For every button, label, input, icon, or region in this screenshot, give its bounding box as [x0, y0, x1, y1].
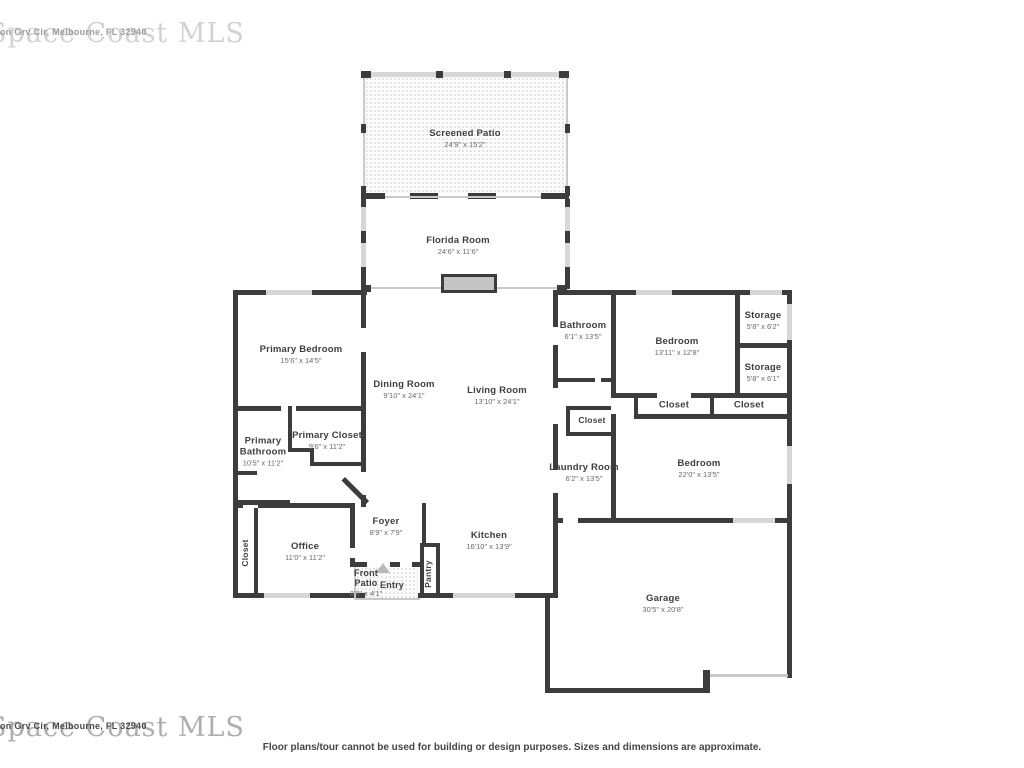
wall-segment	[553, 378, 595, 382]
window-segment	[453, 593, 515, 598]
watermark-top: Space Coast MLS on Grv Cir, Melbourne, F…	[0, 18, 320, 58]
wall-segment	[691, 393, 792, 398]
room-label-garage: Garage 30'5" x 20'8"	[642, 594, 683, 614]
wall-segment	[310, 462, 363, 466]
wall-segment	[233, 471, 257, 475]
room-label-front-patio: Front Patio 8'8" x 4'1"	[348, 568, 384, 598]
wall-segment	[566, 74, 568, 195]
room-label-bedroom-bottom: Bedroom 22'0" x 13'5"	[677, 459, 720, 479]
wall-segment	[361, 71, 371, 78]
window-segment	[750, 290, 782, 295]
room-label-storage-1: Storage 5'8" x 6'2"	[745, 311, 782, 331]
room-label-kitchen: Kitchen 16'10" x 13'9"	[466, 531, 511, 551]
window-segment	[565, 207, 570, 231]
room-label-laundry-room: Laundry Room 6'2" x 13'5"	[549, 463, 618, 483]
room-label-entry: Entry	[380, 580, 404, 590]
wall-segment	[296, 406, 366, 411]
wall-segment	[254, 508, 258, 593]
wall-segment	[634, 414, 714, 419]
window-segment	[361, 243, 366, 267]
window-segment	[266, 290, 312, 295]
room-label-foyer: Foyer 8'9" x 7'9"	[370, 517, 403, 537]
room-label-closet-a: Closet	[659, 401, 689, 412]
wall-segment	[361, 290, 366, 328]
wall-segment	[504, 71, 511, 78]
room-label-bedroom-top: Bedroom 13'11" x 12'8"	[655, 337, 700, 357]
window-segment	[264, 593, 310, 598]
wall-segment	[361, 124, 366, 133]
wall-segment	[735, 343, 792, 348]
wall-segment	[363, 74, 365, 195]
wall-segment	[350, 562, 367, 567]
room-label-primary-closet: Primary Closet 9'6" x 11'2"	[292, 431, 362, 451]
window-segment	[787, 446, 792, 484]
wall-segment	[354, 598, 420, 600]
wall-segment	[703, 670, 710, 693]
room-label-bathroom: Bathroom 6'1" x 13'5"	[560, 321, 606, 341]
wall-segment	[545, 593, 550, 693]
window-segment	[361, 207, 366, 231]
wall-segment	[553, 518, 563, 523]
window-segment	[636, 290, 672, 295]
wall-segment	[422, 503, 426, 547]
room-label-dining-room: Dining Room 9'10" x 24'1"	[373, 380, 434, 400]
room-label-closet-office: Closet	[241, 539, 251, 566]
watermark-address: on Grv Cir, Melbourne, FL 32940	[0, 721, 147, 731]
wall-segment	[233, 503, 243, 508]
room-label-primary-bedroom: Primary Bedroom 15'6" x 14'5"	[260, 345, 343, 365]
window-segment	[733, 518, 775, 523]
window-segment	[365, 72, 565, 77]
wall-segment	[710, 674, 788, 677]
wall-segment	[436, 71, 443, 78]
wall-segment	[787, 290, 792, 678]
wall-segment	[559, 71, 569, 78]
wall-segment	[553, 493, 558, 598]
wall-segment	[601, 378, 613, 382]
room-label-florida-room: Florida Room 24'6" x 11'6"	[426, 236, 490, 256]
wall-segment	[233, 406, 281, 411]
wall-segment	[361, 352, 366, 472]
angled-wall	[341, 477, 369, 505]
room-label-living-room: Living Room 13'10" x 24'1"	[467, 386, 527, 406]
room-label-storage-2: Storage 5'8" x 6'1"	[745, 363, 782, 383]
wall-segment	[385, 196, 541, 198]
wall-segment	[436, 545, 440, 597]
window-segment	[565, 243, 570, 267]
fireplace	[441, 274, 497, 293]
wall-segment	[390, 562, 400, 567]
disclaimer-text: Floor plans/tour cannot be used for buil…	[0, 742, 1024, 753]
room-label-closet-b: Closet	[734, 401, 764, 412]
room-label-screened-patio: Screened Patio 24'9" x 15'2"	[429, 129, 500, 149]
wall-segment	[714, 414, 792, 419]
room-label-closet-hall: Closet	[578, 416, 605, 426]
wall-segment	[545, 688, 708, 693]
wall-segment	[566, 406, 611, 410]
room-label-pantry: Pantry	[424, 560, 434, 588]
wall-segment	[565, 124, 570, 133]
wall-segment	[258, 503, 355, 508]
wall-segment	[350, 503, 355, 548]
wall-segment	[553, 290, 558, 327]
room-label-primary-bathroom: Primary Bathroom 10'5" x 11'2"	[235, 436, 291, 467]
room-label-office: Office 11'0" x 11'2"	[285, 542, 325, 562]
floor-plan: Space Coast MLS on Grv Cir, Melbourne, F…	[0, 0, 1024, 768]
window-segment	[787, 304, 792, 340]
watermark-address: on Grv Cir, Melbourne, FL 32940	[0, 27, 147, 37]
wall-segment	[566, 432, 611, 436]
